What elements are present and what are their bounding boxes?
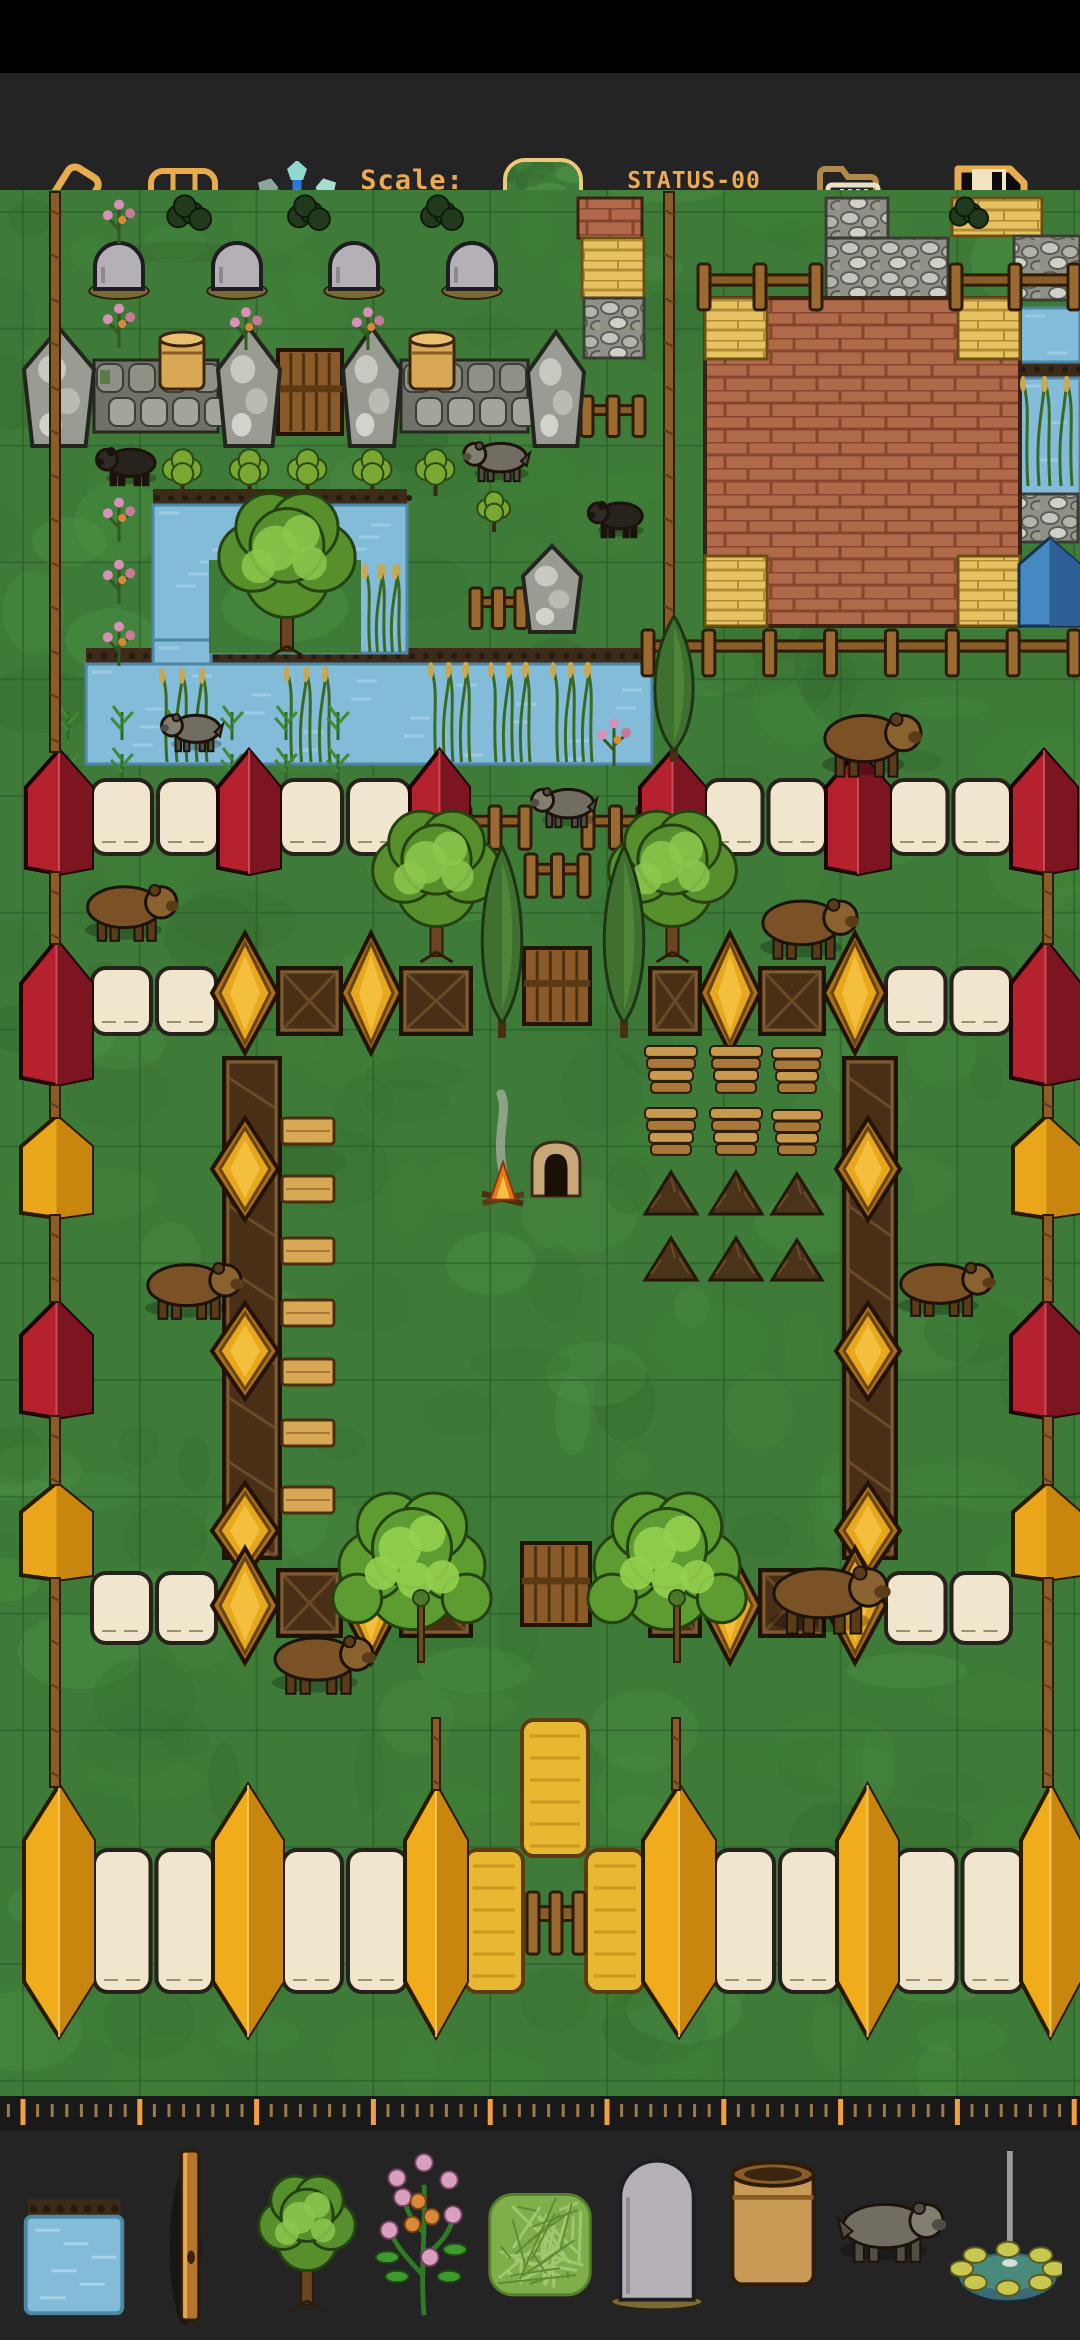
map-canvas[interactable] [0, 190, 1080, 2096]
palette-item-grass-tile[interactable] [484, 2138, 596, 2333]
horizontal-ruler[interactable] [0, 2096, 1080, 2131]
palette-item-tree[interactable] [251, 2138, 363, 2333]
palette-item-flowering-plant[interactable] [368, 2138, 480, 2333]
status-bar [0, 0, 1080, 73]
tile-palette [0, 2131, 1080, 2340]
palette-item-fountain[interactable] [950, 2138, 1062, 2333]
palette-item-water-tile[interactable] [18, 2138, 130, 2333]
toolbar: Scale: 61% STATUS-00 ver 1.1.2 beta [0, 73, 1080, 190]
palette-item-wolf[interactable] [834, 2138, 946, 2333]
palette-item-gravestone[interactable] [601, 2138, 713, 2333]
map-editor-app: { "app": { "scale_label": "Scale:", "sca… [0, 0, 1080, 2340]
palette-item-wood-pole[interactable] [135, 2138, 247, 2333]
palette-item-barrel[interactable] [717, 2138, 829, 2333]
